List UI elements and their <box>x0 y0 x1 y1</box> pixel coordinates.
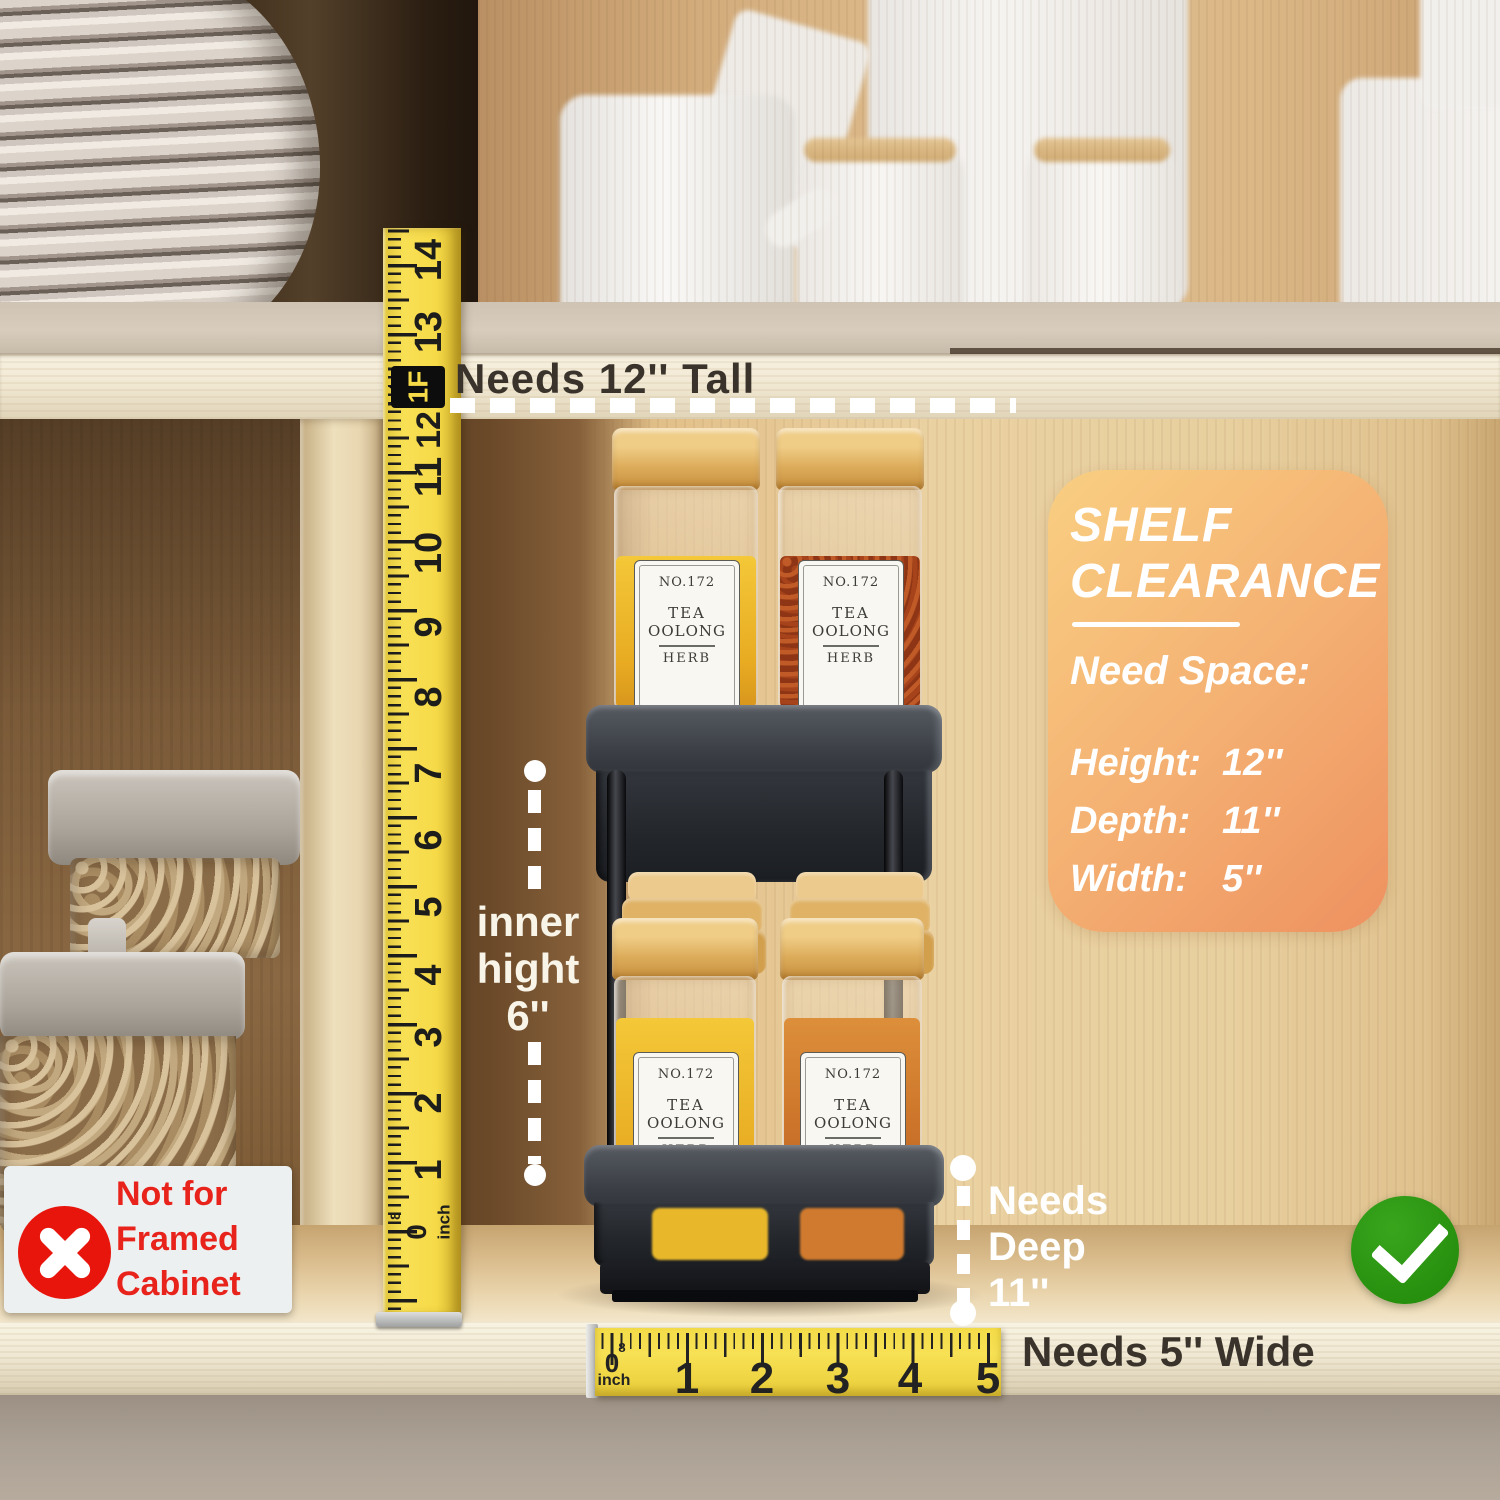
ruler-eighth-label: 8 <box>600 1340 644 1355</box>
tape-number: 4 <box>407 953 451 997</box>
spice-jar-wood-lid <box>612 918 758 980</box>
badge-subtitle: Need Space: <box>1070 649 1388 694</box>
inner-height-dashed-line-lower <box>528 1042 541 1164</box>
tape-number: 1 <box>407 1148 451 1192</box>
tape-end-clip <box>376 1312 462 1327</box>
ceramic-tilted-dish <box>679 7 873 252</box>
tape-foot-marker: 1F <box>391 366 445 408</box>
cashew-jar-lid-upper <box>48 770 300 865</box>
not-for-framed-cabinet-card: Not for Framed Cabinet <box>4 1166 292 1313</box>
inner-height-line-bottom-dot <box>524 1164 546 1186</box>
spice-jar-label: NO.172 TEA OOLONG HERB <box>634 560 740 712</box>
ruler-number: 4 <box>888 1354 932 1404</box>
teapot-wood-lid-2 <box>1034 138 1170 162</box>
rack-bottom-bin <box>594 1202 934 1266</box>
ceramic-teapot <box>796 142 964 317</box>
teapot-wood-lid <box>804 138 956 162</box>
spec-depth: Depth: 11'' <box>1070 800 1388 843</box>
tape-eighth-label: 8 <box>387 1212 403 1220</box>
depth-line-top-dot <box>950 1155 976 1181</box>
depth-line-bottom-dot <box>950 1300 976 1326</box>
badge-divider <box>1072 622 1240 627</box>
needs-wide-label: Needs 5'' Wide <box>1022 1328 1315 1376</box>
upper-shelf-surface <box>0 302 1500 354</box>
inner-height-label: inner hight 6'' <box>448 898 608 1039</box>
cabinet-divider-post <box>300 419 388 1322</box>
rack-slide-rail <box>612 1290 918 1302</box>
not-for-framed-label: Not for Framed Cabinet <box>116 1172 241 1307</box>
tape-number: 14 <box>407 238 451 282</box>
tape-number: 13 <box>407 310 451 354</box>
ruler-number: 5 <box>966 1354 1010 1404</box>
check-icon <box>1351 1196 1459 1304</box>
ceramic-jar-top <box>1420 0 1500 109</box>
tape-number: 5 <box>407 885 451 929</box>
shelf-clearance-badge: SHELF CLEARANCE Need Space: Height: 12''… <box>1048 470 1388 932</box>
spec-height: Height: 12'' <box>1070 742 1388 785</box>
badge-title-line2: CLEARANCE <box>1070 554 1388 610</box>
cross-icon <box>18 1206 111 1299</box>
ruler-horizontal: 0 inch 8 1 2 3 4 5 <box>595 1328 1001 1396</box>
spice-jar-label: NO.172 TEA OOLONG HERB <box>798 560 904 712</box>
ceramic-teapot-2 <box>1026 142 1178 317</box>
ruler-ticks <box>595 1333 997 1365</box>
ruler-number: 2 <box>740 1354 784 1404</box>
spice-jar-wood-lid <box>612 428 760 490</box>
needs-deep-label: Needs Deep 11'' <box>988 1178 1158 1316</box>
height-clearance-dashed-line <box>450 398 1016 413</box>
rack-top-bin <box>596 770 932 882</box>
tape-number: 2 <box>407 1081 451 1125</box>
tape-number-12: 12 <box>407 408 451 452</box>
bin-window-orange <box>800 1208 904 1260</box>
bin-window-yellow <box>652 1208 768 1260</box>
teapot-spout <box>758 182 843 254</box>
ceramic-cylinder <box>560 95 795 317</box>
floor <box>0 1395 1500 1500</box>
product-infographic: NO.172 TEA OOLONG HERB NO.172 TEA OOLONG… <box>0 0 1500 1500</box>
depth-dashed-line <box>957 1186 970 1302</box>
spec-width: Width: 5'' <box>1070 858 1388 901</box>
tape-number: 3 <box>407 1015 451 1059</box>
spice-jar-wood-lid <box>780 918 924 980</box>
tape-zero: 0 <box>401 1224 433 1240</box>
tape-number: 6 <box>407 818 451 862</box>
ruler-number: 3 <box>816 1354 860 1404</box>
inner-height-line-top-dot <box>524 760 546 782</box>
tape-number: 8 <box>407 675 451 719</box>
shelf-gap-line <box>950 348 1500 354</box>
spice-jar-top-left: NO.172 TEA OOLONG HERB <box>612 428 760 710</box>
rack-top-bin-rim <box>586 705 942 773</box>
ruler-unit-label: inch <box>592 1372 636 1390</box>
tape-number: 10 <box>407 531 451 575</box>
tape-unit-label: inch <box>434 1205 454 1240</box>
badge-specs: Height: 12'' Depth: 11'' Width: 5'' <box>1048 742 1388 901</box>
spice-jar-wood-lid <box>776 428 924 490</box>
needs-tall-label: Needs 12'' Tall <box>455 355 755 403</box>
tape-number: 11 <box>407 455 451 499</box>
ceramic-canister-large <box>868 0 1188 310</box>
ceramic-canister-edge <box>1340 78 1500 320</box>
tape-number: 7 <box>407 751 451 795</box>
tape-number: 9 <box>407 605 451 649</box>
ruler-number: 1 <box>665 1354 709 1404</box>
badge-title-line1: SHELF <box>1070 498 1388 554</box>
inner-height-dashed-line-upper <box>528 790 541 900</box>
cashew-jar-lid-lower <box>0 952 245 1040</box>
tape-measure-vertical: 14 13 1F 12 11 10 9 8 7 6 5 4 3 2 1 8 0 … <box>383 228 461 1316</box>
spice-jar-top-right: NO.172 TEA OOLONG HERB <box>776 428 924 710</box>
rack-bottom-bin-rim <box>584 1145 944 1207</box>
